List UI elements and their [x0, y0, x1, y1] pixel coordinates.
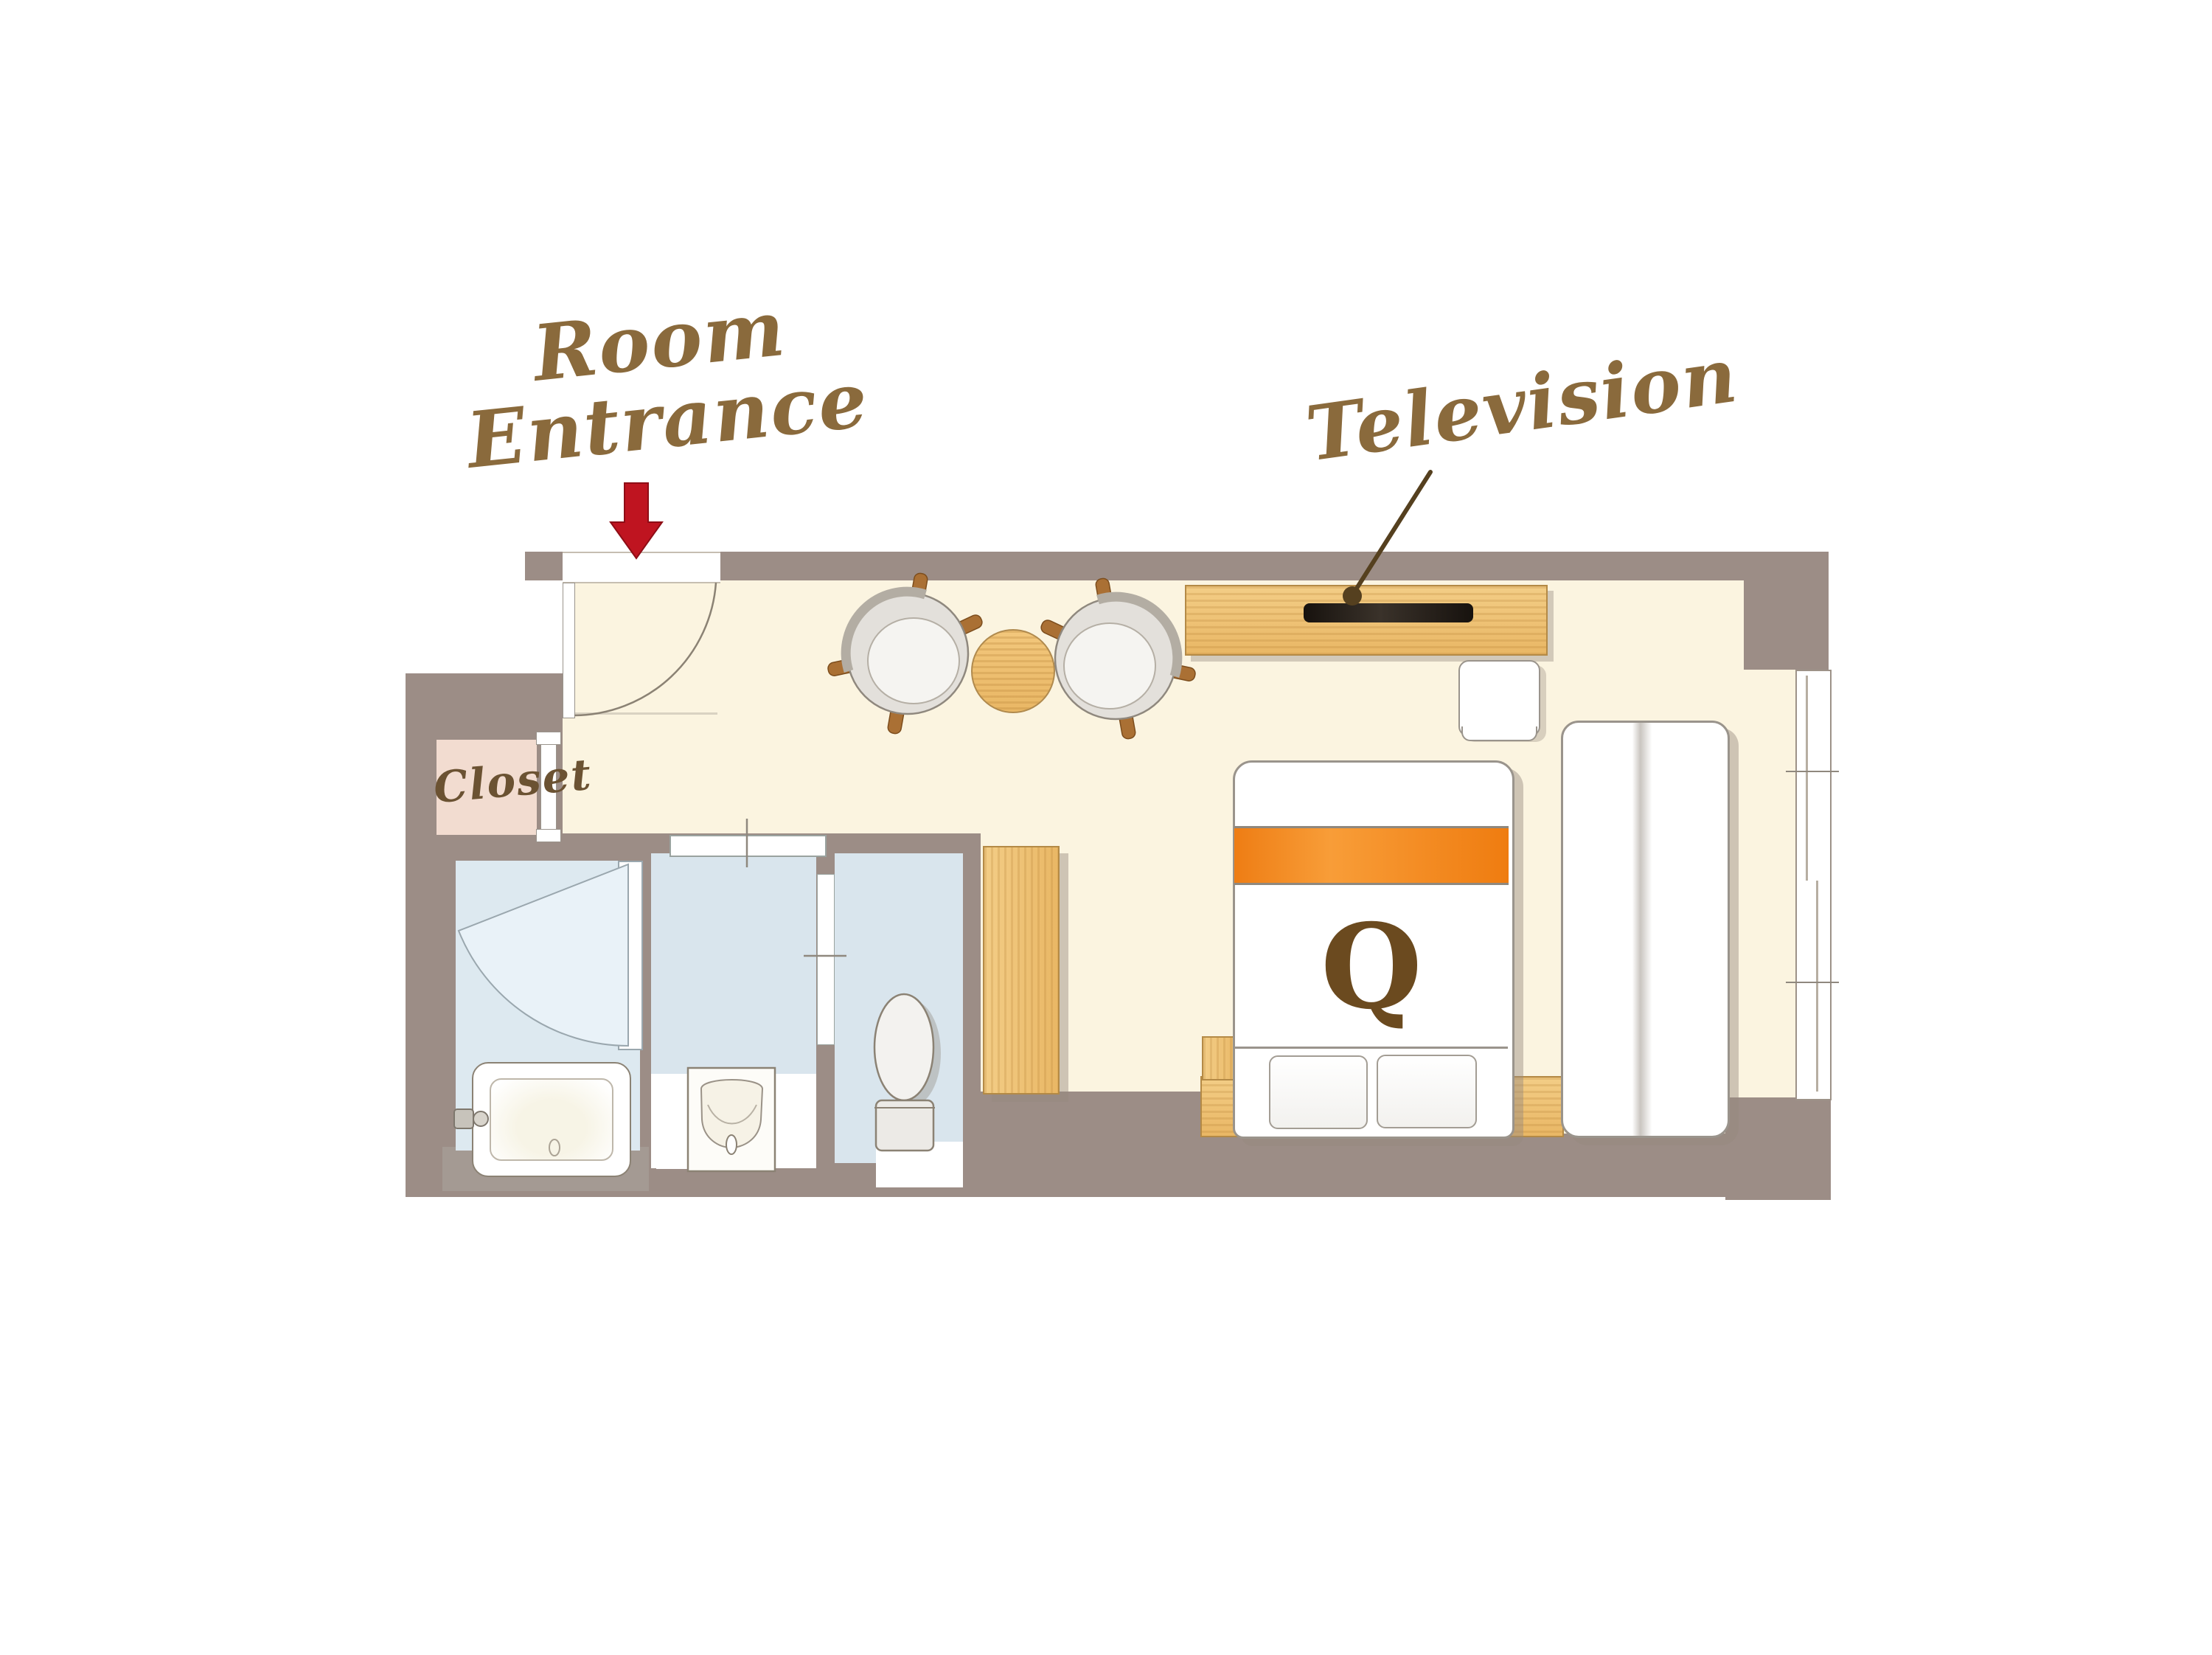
- wall-top-left-block: [525, 552, 563, 580]
- closet-door-cap-bottom: [536, 829, 561, 842]
- entrance-door-sill: [563, 552, 720, 583]
- side-stool-seat-edge: [1461, 726, 1537, 741]
- pillow-left: [1269, 1055, 1368, 1129]
- shower-door-leaf: [618, 861, 643, 1050]
- tv-screen: [1304, 603, 1473, 622]
- wall-top-right-corner: [1744, 580, 1829, 670]
- bathtub-inner: [490, 1078, 613, 1161]
- wall-bottom-right-block: [1725, 1097, 1831, 1200]
- toilet-room-floor: [835, 853, 963, 1163]
- storage-cabinet: [983, 846, 1060, 1094]
- window-pane-line-lower: [1816, 881, 1818, 1092]
- wall-top: [720, 552, 1829, 580]
- vanity-sliding-door: [669, 835, 827, 857]
- queen-bed: Q: [1233, 760, 1514, 1139]
- vanity-room-floor: [651, 853, 816, 1074]
- window: [1795, 670, 1832, 1100]
- vanity-counter-extension: [656, 1110, 751, 1169]
- side-stool: [1458, 660, 1540, 737]
- entrance-arrow-icon: [611, 483, 662, 558]
- closet-door-cap-top: [536, 732, 561, 745]
- floor-plan-canvas: Closet Q: [0, 0, 2212, 1655]
- round-table: [971, 629, 1055, 713]
- bed-size-label: Q: [1235, 907, 1508, 1028]
- toilet-mat: [876, 1142, 963, 1187]
- room-entrance-label: Room Entrance: [450, 280, 877, 482]
- main-floor-top: [563, 580, 1744, 670]
- vestibule-step-line: [564, 712, 717, 715]
- television-label: Television: [1301, 339, 1721, 474]
- toilet-pocket-door: [817, 874, 835, 1045]
- bed-accent-band: [1234, 826, 1509, 885]
- window-pane-line-upper: [1806, 676, 1808, 881]
- pillow-right: [1377, 1055, 1477, 1128]
- entrance-door-leaf: [563, 583, 575, 718]
- wall-under-cabinet: [981, 1092, 1202, 1134]
- sofa-daybed: [1561, 721, 1730, 1138]
- bed-foot-line: [1235, 1047, 1508, 1049]
- closet-label: Closet: [432, 754, 576, 811]
